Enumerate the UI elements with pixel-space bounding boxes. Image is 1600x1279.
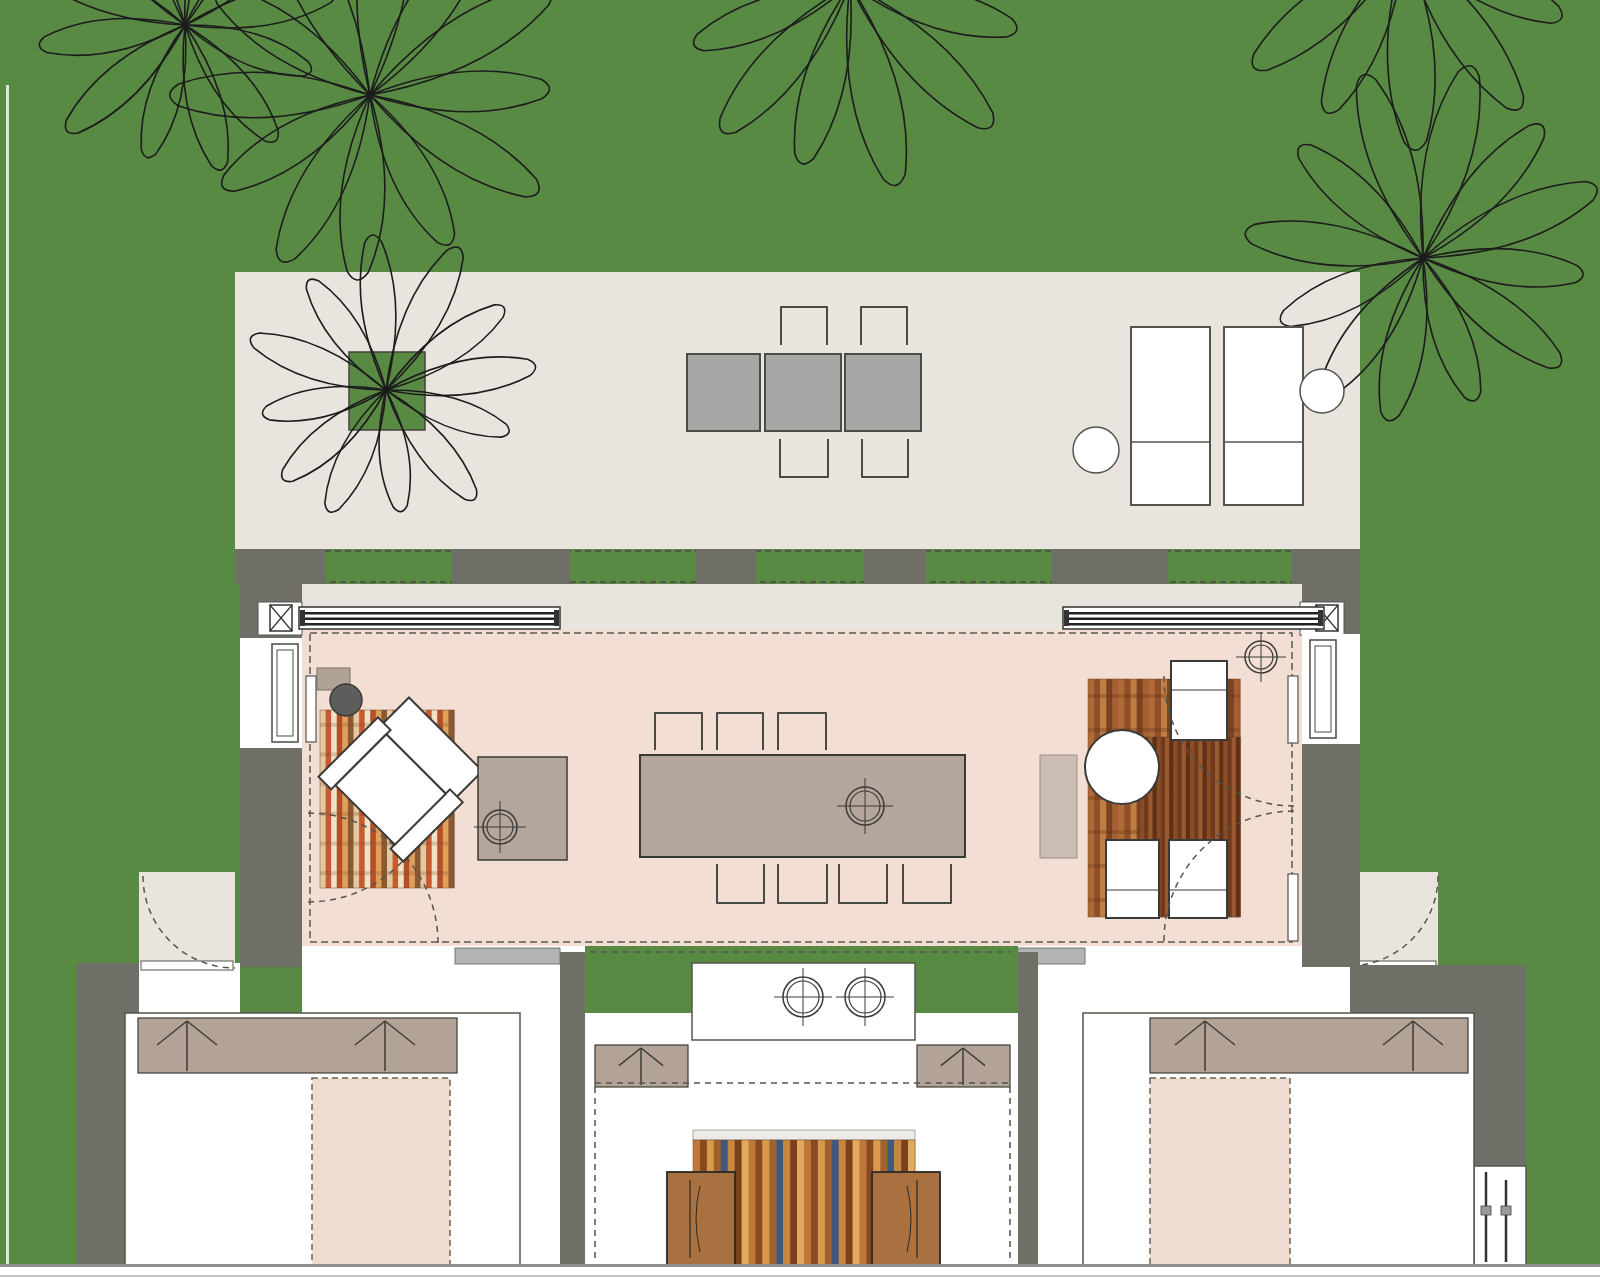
kitchen-island <box>478 757 567 860</box>
wall-band-lower-right <box>1350 965 1526 1013</box>
wall-pillar-d <box>1052 549 1168 584</box>
wardrobe-band-left <box>138 1018 457 1073</box>
corridor-right-bedroom <box>1038 963 1083 1013</box>
sliding-glass-door-right <box>1063 607 1324 629</box>
wall-chunk-left <box>240 872 302 967</box>
wall-kitchen-right <box>1018 952 1038 1267</box>
site-frame-edge <box>6 85 9 1266</box>
sliding-glass-door-left <box>299 607 560 629</box>
entry-patio-right <box>1350 872 1438 965</box>
plant-pot <box>330 684 362 716</box>
lounge-chair-bl <box>1106 840 1159 918</box>
wall-column-outer-left <box>77 963 125 1267</box>
wall-pillar-b <box>696 549 756 584</box>
sun-lounger-1 <box>1131 327 1210 505</box>
wall-column-outer-right <box>1474 1013 1526 1168</box>
sun-lounger-2 <box>1224 327 1303 505</box>
snug-armchair-right <box>872 1172 940 1265</box>
ground-white-1 <box>0 1267 1600 1275</box>
ground-line-1 <box>0 1264 1600 1267</box>
bed-right <box>1150 1078 1290 1266</box>
floor-plan-drawing <box>0 0 1600 1279</box>
threshold-left <box>455 948 560 964</box>
lounge-chair-top <box>1171 661 1227 740</box>
bed-left <box>312 1078 450 1266</box>
door-leaf-right-2 <box>1288 874 1298 941</box>
lounger-side-table-1 <box>1073 427 1119 473</box>
wall-pillar-c <box>864 549 926 584</box>
entry-patio-left <box>139 872 235 963</box>
corridor-right-outer <box>1302 967 1350 1013</box>
door-leaf-left <box>306 676 316 742</box>
wall-chunk-right <box>1302 872 1360 967</box>
side-door-hinge-1 <box>1481 1206 1491 1215</box>
lounge-round-table <box>1085 730 1159 804</box>
column-marker-left <box>270 605 292 631</box>
side-door-hinge-2 <box>1501 1206 1511 1215</box>
outdoor-dining-table-2 <box>765 354 841 431</box>
outdoor-dining-table-3 <box>845 354 921 431</box>
lounger-side-table-2 <box>1300 369 1344 413</box>
snug-armchair-left <box>667 1172 735 1265</box>
wall-kitchen-left <box>560 952 585 1267</box>
entry-patio-left-sill <box>141 961 233 970</box>
wall-pillar-a <box>452 549 570 584</box>
ground-line-2 <box>0 1275 1600 1277</box>
dining-table <box>640 755 965 857</box>
outdoor-dining-table-1 <box>687 354 760 431</box>
floor-plan-canvas <box>0 0 1600 1279</box>
lounge-chair-br <box>1169 840 1227 918</box>
snug-rug-fold <box>693 1130 915 1140</box>
door-leaf-right-1 <box>1288 676 1298 743</box>
console-bench <box>1040 755 1077 858</box>
side-door-detail <box>1474 1166 1526 1266</box>
